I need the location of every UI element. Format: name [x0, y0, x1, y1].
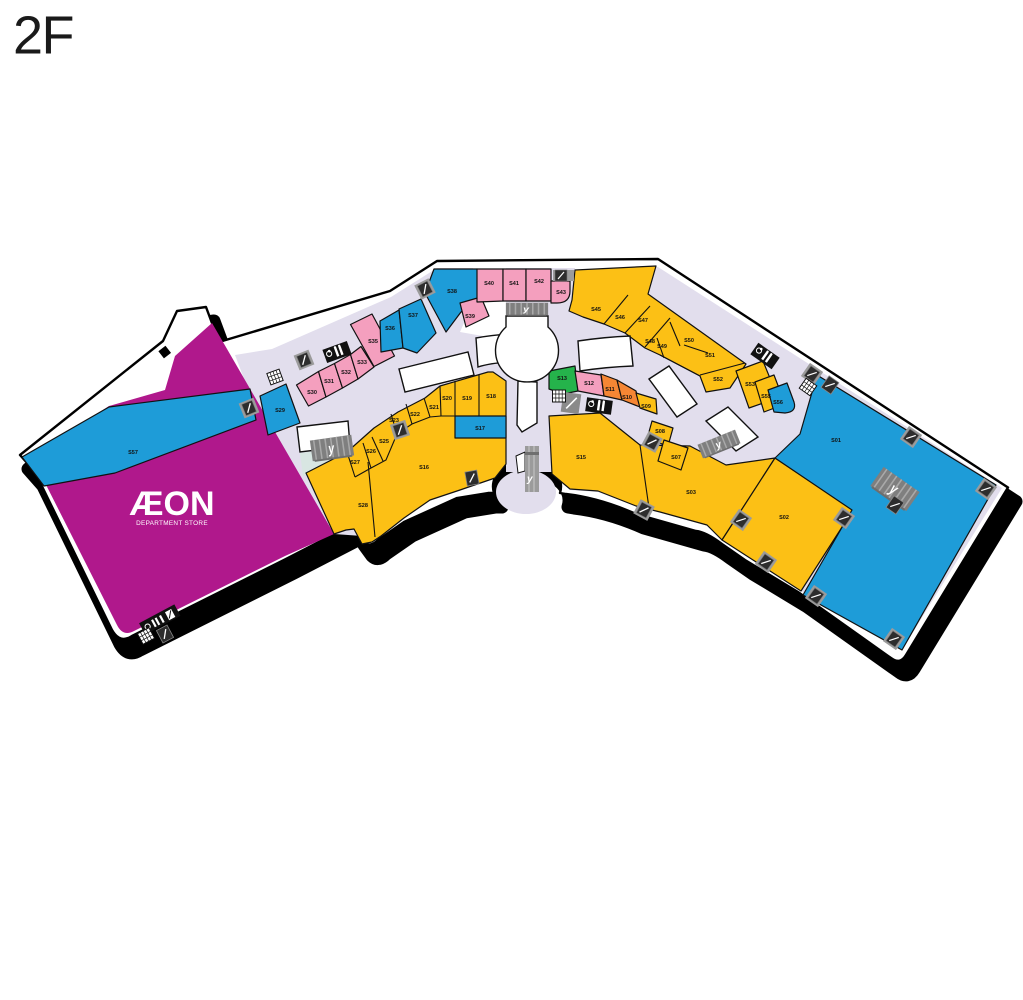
svg-text:S51: S51	[705, 353, 715, 359]
svg-text:S20: S20	[442, 396, 452, 402]
svg-text:S39: S39	[465, 314, 475, 320]
svg-text:S23: S23	[389, 418, 399, 424]
svg-text:S22: S22	[410, 412, 420, 418]
svg-text:S57: S57	[128, 450, 138, 456]
svg-text:S21: S21	[429, 405, 439, 411]
svg-text:S40: S40	[484, 281, 494, 287]
svg-text:S53: S53	[745, 382, 755, 388]
svg-text:S48: S48	[645, 339, 655, 345]
svg-text:S50: S50	[684, 338, 694, 344]
svg-text:S30: S30	[307, 390, 317, 396]
svg-text:y: y	[526, 474, 533, 485]
svg-text:S03: S03	[686, 490, 696, 496]
svg-text:S33: S33	[357, 360, 367, 366]
svg-text:S10: S10	[622, 395, 632, 401]
svg-text:S55: S55	[761, 394, 771, 400]
svg-text:S27: S27	[350, 460, 360, 466]
svg-text:S56: S56	[773, 400, 783, 406]
svg-text:S02: S02	[779, 515, 789, 521]
svg-text:S08: S08	[655, 429, 665, 435]
svg-text:S52: S52	[713, 377, 723, 383]
svg-text:S28: S28	[358, 503, 368, 509]
svg-text:S32: S32	[341, 370, 351, 376]
svg-text:DEPARTMENT STORE: DEPARTMENT STORE	[136, 520, 208, 527]
svg-text:S49: S49	[657, 344, 667, 350]
svg-text:S29: S29	[275, 408, 285, 414]
svg-text:S46: S46	[615, 315, 625, 321]
svg-text:S12: S12	[584, 381, 594, 387]
svg-text:S01: S01	[831, 438, 841, 444]
svg-text:S16: S16	[419, 465, 429, 471]
svg-text:2F: 2F	[13, 6, 73, 66]
svg-text:S11: S11	[605, 387, 614, 393]
svg-text:S41: S41	[509, 281, 519, 287]
svg-text:S18: S18	[486, 394, 496, 400]
svg-text:S07: S07	[671, 455, 681, 461]
svg-text:S25: S25	[379, 439, 389, 445]
svg-text:S13: S13	[557, 376, 567, 382]
svg-text:S19: S19	[462, 396, 472, 402]
svg-text:S47: S47	[638, 318, 648, 324]
svg-text:S26: S26	[366, 449, 376, 455]
svg-text:S15: S15	[576, 455, 586, 461]
svg-text:ÆON: ÆON	[130, 485, 215, 523]
svg-text:S36: S36	[385, 326, 395, 332]
svg-text:S43: S43	[556, 290, 566, 296]
svg-text:S35: S35	[368, 339, 378, 345]
svg-text:S42: S42	[534, 279, 544, 285]
svg-text:S38: S38	[447, 289, 457, 295]
svg-text:S17: S17	[475, 426, 485, 432]
svg-text:S37: S37	[408, 313, 418, 319]
svg-text:S09: S09	[641, 404, 651, 410]
svg-text:S31: S31	[324, 379, 334, 385]
svg-text:S45: S45	[591, 307, 601, 313]
